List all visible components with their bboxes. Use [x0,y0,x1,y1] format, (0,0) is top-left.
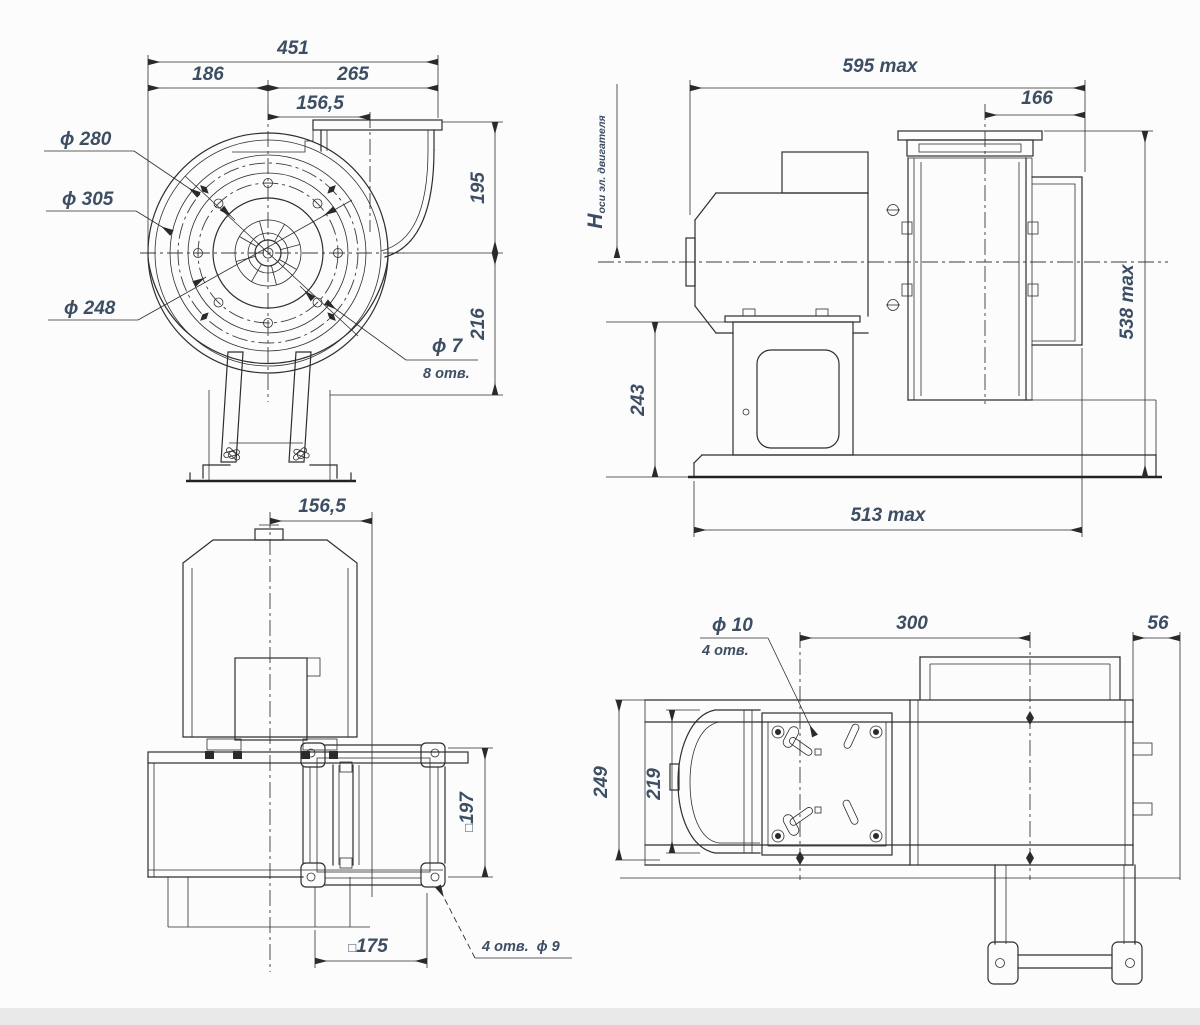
dim-175: □175 [348,936,388,957]
dim-265: 265 [336,64,369,85]
label-4-holes-d10: 4 отв. [701,643,749,659]
dim-156-5-top: 156,5 [298,496,346,517]
technical-drawing: 451 186 265 156,5 195 216 ϕ 280 ϕ 305 ϕ … [0,0,1200,1025]
label-4-holes-d9: 4 отв.ϕ 9 [481,939,560,955]
dim-166: 166 [1021,88,1053,109]
dim-595: 595 max [842,56,918,77]
dim-538: 538 max [1117,263,1138,339]
label-d7: ϕ 7 [432,336,464,357]
label-d10: ϕ 10 [712,615,753,636]
dim-56: 56 [1147,613,1169,634]
dim-249: 249 [591,766,612,799]
label-d305: ϕ 305 [62,189,114,210]
dim-197: □197 [457,791,478,832]
dim-216: 216 [468,308,489,341]
dim-195: 195 [468,172,489,204]
footer-strip [0,1008,1200,1025]
dim-513: 513 max [850,505,926,526]
dim-300: 300 [896,613,928,634]
label-8-holes: 8 отв. [423,366,470,382]
dim-186: 186 [192,64,224,85]
dim-156-5-front: 156,5 [296,93,344,114]
dim-451: 451 [276,38,309,59]
label-d280: ϕ 280 [60,129,112,150]
label-d248: ϕ 248 [64,298,116,319]
dim-243: 243 [628,384,649,417]
drawing-page: 451 186 265 156,5 195 216 ϕ 280 ϕ 305 ϕ … [0,0,1200,1025]
dim-219: 219 [644,768,665,801]
